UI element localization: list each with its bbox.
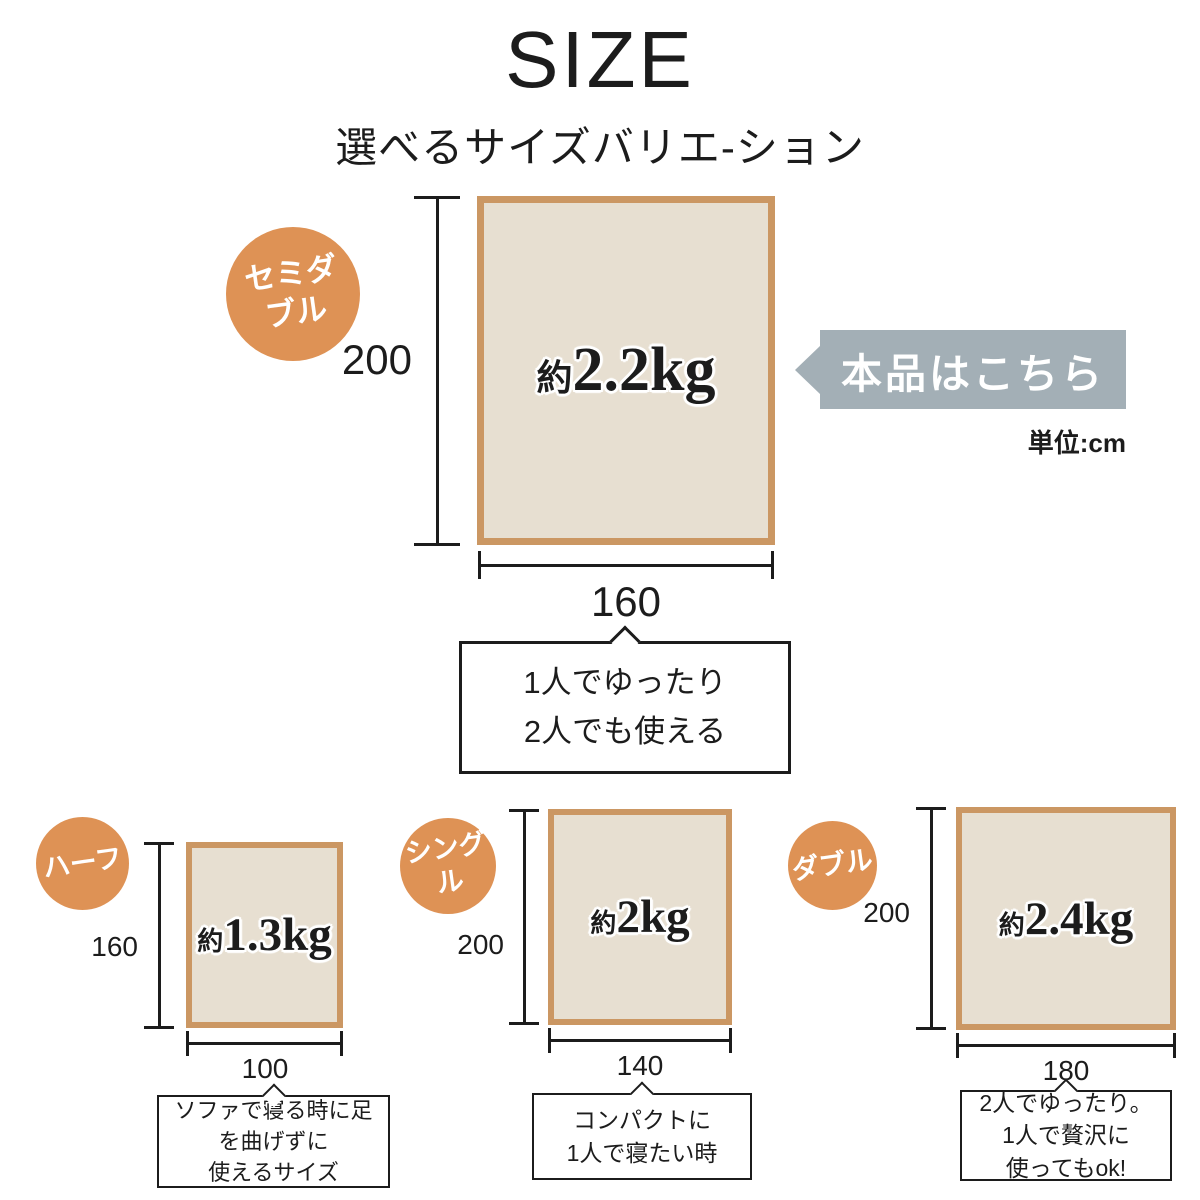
- height-dimension-line-half: [144, 842, 174, 1029]
- weight-semi-double: 約2.2kg: [537, 335, 716, 406]
- callout-label: 本品はこちら: [841, 340, 1105, 400]
- badge-half: ハーフ: [36, 817, 129, 910]
- badge-single: シングル: [400, 818, 496, 914]
- caption-bubble-double: 2人でゆったり。 1人で贅沢に 使ってもok!: [960, 1090, 1172, 1181]
- caption-bubble-half: ソファで寝る時に足 を曲げずに 使えるサイズ: [157, 1095, 390, 1188]
- blanket-semi-double: 約2.2kg: [477, 196, 775, 545]
- bubble-notch-icon: [609, 625, 640, 656]
- height-dimension-line-semi-double: [414, 196, 460, 546]
- page-title: SIZE: [0, 14, 1200, 106]
- blanket-half: 約1.3kg: [186, 842, 343, 1028]
- unit-label: 単位:cm: [960, 423, 1126, 460]
- weight-double: 約2.4kg: [999, 892, 1133, 946]
- width-dimension-line-semi-double: [478, 551, 774, 579]
- this-product-callout: 本品はこちら: [820, 330, 1126, 409]
- height-dimension-line-single: [509, 809, 539, 1025]
- badge-single-label: シングル: [396, 826, 500, 906]
- page-subtitle: 選べるサイズバリエ-ション: [0, 114, 1200, 175]
- bubble-notch-icon: [630, 1081, 654, 1105]
- height-value-half: 160: [74, 931, 138, 963]
- callout-arrow-icon: [795, 346, 820, 394]
- width-value-single: 140: [590, 1050, 690, 1082]
- height-value-single: 200: [440, 929, 504, 961]
- blanket-double: 約2.4kg: [956, 807, 1176, 1030]
- weight-single: 約2kg: [590, 890, 689, 944]
- caption-bubble-semi-double: 1人でゆったり 2人でも使える: [459, 641, 791, 774]
- caption-bubble-single: コンパクトに 1人で寝たい時: [532, 1093, 752, 1180]
- blanket-single: 約2kg: [548, 809, 732, 1025]
- height-dimension-line-double: [916, 807, 946, 1030]
- height-value-semi-double: 200: [336, 336, 412, 384]
- size-variation-diagram: SIZE 選べるサイズバリエ-ション セミダ ブル 200 約2.2kg 本品は…: [0, 0, 1200, 1200]
- badge-half-label: ハーフ: [41, 841, 124, 885]
- badge-semi-double-label: セミダ ブル: [242, 249, 345, 339]
- width-value-half: 100: [215, 1053, 315, 1085]
- badge-double-label: ダブル: [790, 843, 875, 888]
- weight-half: 約1.3kg: [197, 908, 331, 962]
- width-value-semi-double: 160: [526, 578, 726, 626]
- height-value-double: 200: [846, 897, 910, 929]
